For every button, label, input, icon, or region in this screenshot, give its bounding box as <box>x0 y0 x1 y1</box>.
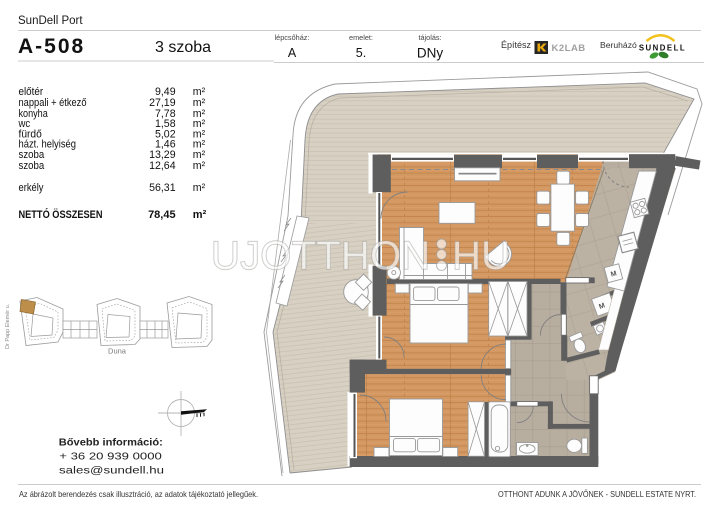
svg-text:m²: m² <box>193 209 207 221</box>
svg-text:SunDell Port: SunDell Port <box>18 15 83 27</box>
svg-text:Dr Papp Elemér u.: Dr Papp Elemér u. <box>5 303 11 349</box>
svg-text:OTTHONT ADUNK A JÖVŐNEK - SUND: OTTHONT ADUNK A JÖVŐNEK - SUNDELL ESTATE… <box>498 490 696 499</box>
svg-text:sales@sundell.hu: sales@sundell.hu <box>59 465 164 477</box>
svg-text:12,64: 12,64 <box>149 160 176 172</box>
svg-text:UJOTTHON: UJOTTHON <box>211 234 430 278</box>
svg-text:szoba: szoba <box>19 160 45 172</box>
svg-text:Az ábrázolt berendezés csak il: Az ábrázolt berendezés csak illusztráció… <box>19 489 258 499</box>
svg-text:lépcsőház:: lépcsőház: <box>275 33 310 42</box>
svg-text:emelet:: emelet: <box>349 33 373 42</box>
svg-text:DNy: DNy <box>417 46 443 61</box>
svg-text:56,31: 56,31 <box>149 182 176 194</box>
svg-text:Építész: Építész <box>501 40 532 50</box>
svg-text:+ 36 20 939 0000: + 36 20 939 0000 <box>59 451 162 463</box>
svg-text:m²: m² <box>193 182 206 194</box>
svg-text:m²: m² <box>193 160 206 172</box>
svg-text:Duna: Duna <box>108 347 127 356</box>
svg-text:SUNDELL: SUNDELL <box>639 44 686 53</box>
svg-text:A-508: A-508 <box>18 35 85 58</box>
svg-text:A: A <box>288 46 297 60</box>
svg-text:3 szoba: 3 szoba <box>155 39 211 56</box>
svg-text:HU: HU <box>452 234 510 278</box>
svg-text:5.: 5. <box>356 46 366 60</box>
svg-text:K2LAB: K2LAB <box>552 43 586 54</box>
svg-text:tájolás:: tájolás: <box>418 33 441 42</box>
svg-text:Beruházó: Beruházó <box>600 40 637 50</box>
svg-text:NETTÓ ÖSSZESEN: NETTÓ ÖSSZESEN <box>19 208 103 221</box>
svg-text:Bővebb információ:: Bővebb információ: <box>59 437 163 449</box>
svg-text:erkély: erkély <box>19 182 45 194</box>
svg-text:78,45: 78,45 <box>148 209 176 221</box>
